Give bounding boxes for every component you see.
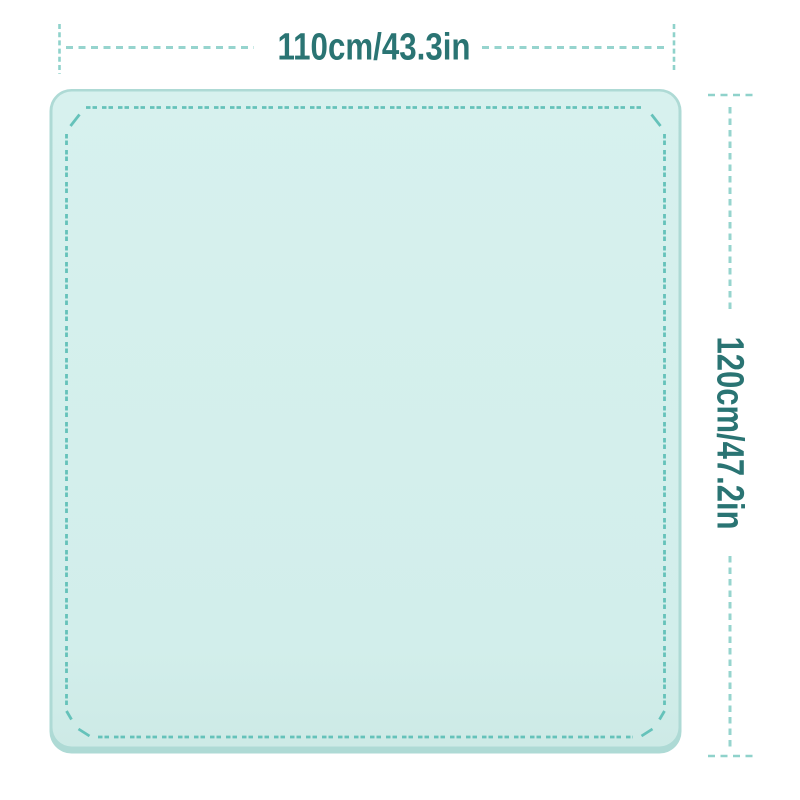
svg-text:120cm/47.2in: 120cm/47.2in	[709, 337, 751, 530]
svg-text:110cm/43.3in: 110cm/43.3in	[278, 27, 471, 69]
